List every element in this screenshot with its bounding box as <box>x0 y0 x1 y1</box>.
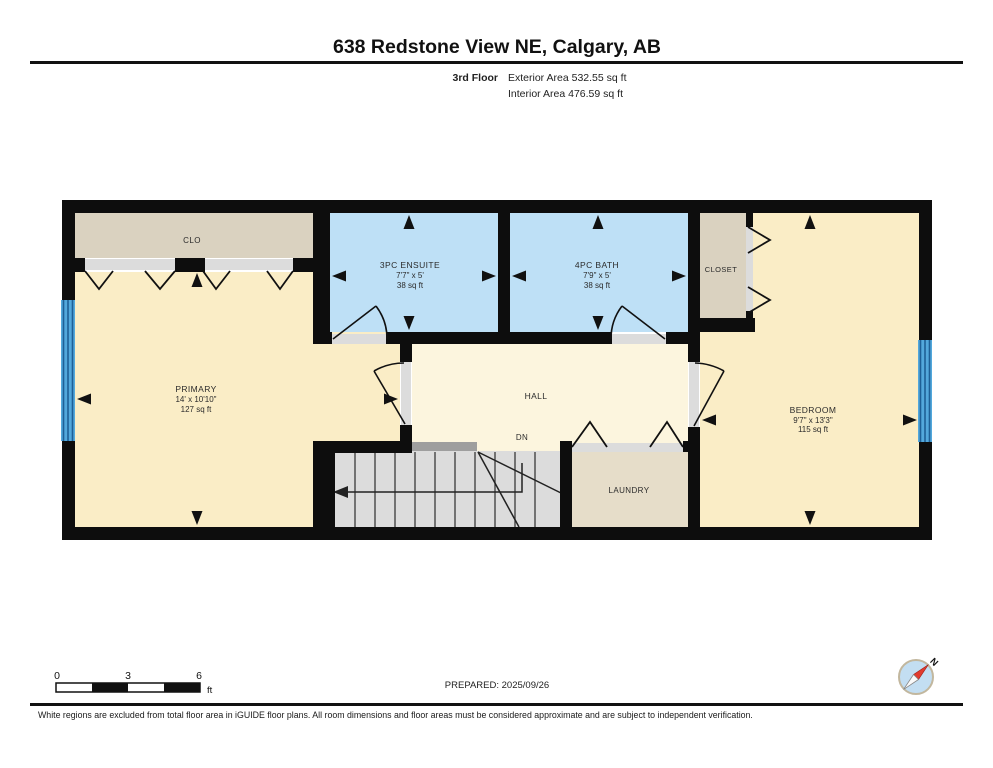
bath-dimensions: 7'9" x 5' <box>583 271 611 280</box>
primary-area: 127 sq ft <box>181 405 212 414</box>
ensuite-dimensions: 7'7" x 5' <box>396 271 424 280</box>
wall-ensuite-bath <box>498 213 510 344</box>
bedroom-dimensions: 9'7" x 13'3" <box>793 416 833 425</box>
primary-dimensions: 14' x 10'10" <box>175 395 216 404</box>
wall-left-lower <box>62 441 75 527</box>
wall-clo-ensuite <box>313 213 330 344</box>
window-right <box>918 340 932 442</box>
floor-label: 3rd Floor <box>452 72 498 84</box>
scale-tick-6: 6 <box>196 670 202 682</box>
wall-clo-seg <box>293 258 330 272</box>
bath-area: 38 sq ft <box>584 281 611 290</box>
interior-area-label: Interior Area 476.59 sq ft <box>508 88 623 100</box>
stair-threshold <box>410 442 477 451</box>
bath-label: 4PC BATH <box>575 260 619 270</box>
footer-divider <box>30 703 963 706</box>
closet-door-track <box>746 227 753 311</box>
scale-bar: 0 3 6 ft <box>54 670 213 696</box>
wall-laundry-post <box>683 441 700 452</box>
bedroom-area: 115 sq ft <box>798 425 829 434</box>
wall-closet-bottom <box>688 318 755 332</box>
wall-primary-stairs <box>313 441 335 540</box>
ensuite-area: 38 sq ft <box>397 281 424 290</box>
scale-tick-3: 3 <box>125 670 131 682</box>
hall-room <box>412 344 688 443</box>
wall-clo-seg <box>62 258 85 272</box>
clo-door-track <box>85 259 175 270</box>
stairwell <box>335 451 560 527</box>
wall-left-upper <box>62 213 75 301</box>
scale-unit-label: ft <box>207 685 213 696</box>
primary-door-track <box>401 362 411 425</box>
wall-bath-closet <box>688 213 700 332</box>
footer-disclaimer: White regions are excluded from total fl… <box>38 710 753 720</box>
bedroom-label: BEDROOM <box>790 405 837 415</box>
clo-door-track <box>205 259 293 270</box>
wall-primary-hall <box>400 344 412 362</box>
header-divider <box>30 61 963 64</box>
bath-door-track <box>612 334 666 344</box>
window-left <box>61 300 75 441</box>
hall-label: HALL <box>525 391 548 401</box>
page-title: 638 Redstone View NE, Calgary, AB <box>333 36 661 58</box>
wall-ensuite-bottom <box>313 332 332 344</box>
ensuite-door-track <box>332 334 386 344</box>
floor-plan-canvas: 638 Redstone View NE, Calgary, AB 3rd Fl… <box>0 0 993 768</box>
wall-closet-stub <box>746 213 753 227</box>
floor-plan-page: 638 Redstone View NE, Calgary, AB 3rd Fl… <box>0 0 993 768</box>
wall-right-lower <box>919 442 932 527</box>
laundry-door-track <box>572 443 683 452</box>
wall-bath-bottom <box>510 332 612 344</box>
laundry-label: LAUNDRY <box>609 486 650 495</box>
clo-label: CLO <box>183 236 201 245</box>
exterior-area-label: Exterior Area 532.55 sq ft <box>508 72 627 84</box>
stairs-dn-label: DN <box>516 433 528 442</box>
wall-hall-bedroom <box>688 332 700 362</box>
wall-right-upper <box>919 213 932 341</box>
scale-tick-0: 0 <box>54 670 60 682</box>
wall-ensuite-bottom <box>386 332 510 344</box>
wall-clo-seg <box>175 258 205 272</box>
primary-label: PRIMARY <box>175 384 216 394</box>
bedroom-door-track <box>689 362 699 427</box>
closet-label: CLOSET <box>705 265 737 274</box>
ensuite-label: 3PC ENSUITE <box>380 260 440 270</box>
compass-icon: N <box>899 656 940 694</box>
wall-stairs-laundry <box>560 441 572 540</box>
wall-top <box>62 200 932 213</box>
wall-bottom <box>62 527 932 540</box>
prepared-date-label: PREPARED: 2025/09/26 <box>445 680 549 691</box>
